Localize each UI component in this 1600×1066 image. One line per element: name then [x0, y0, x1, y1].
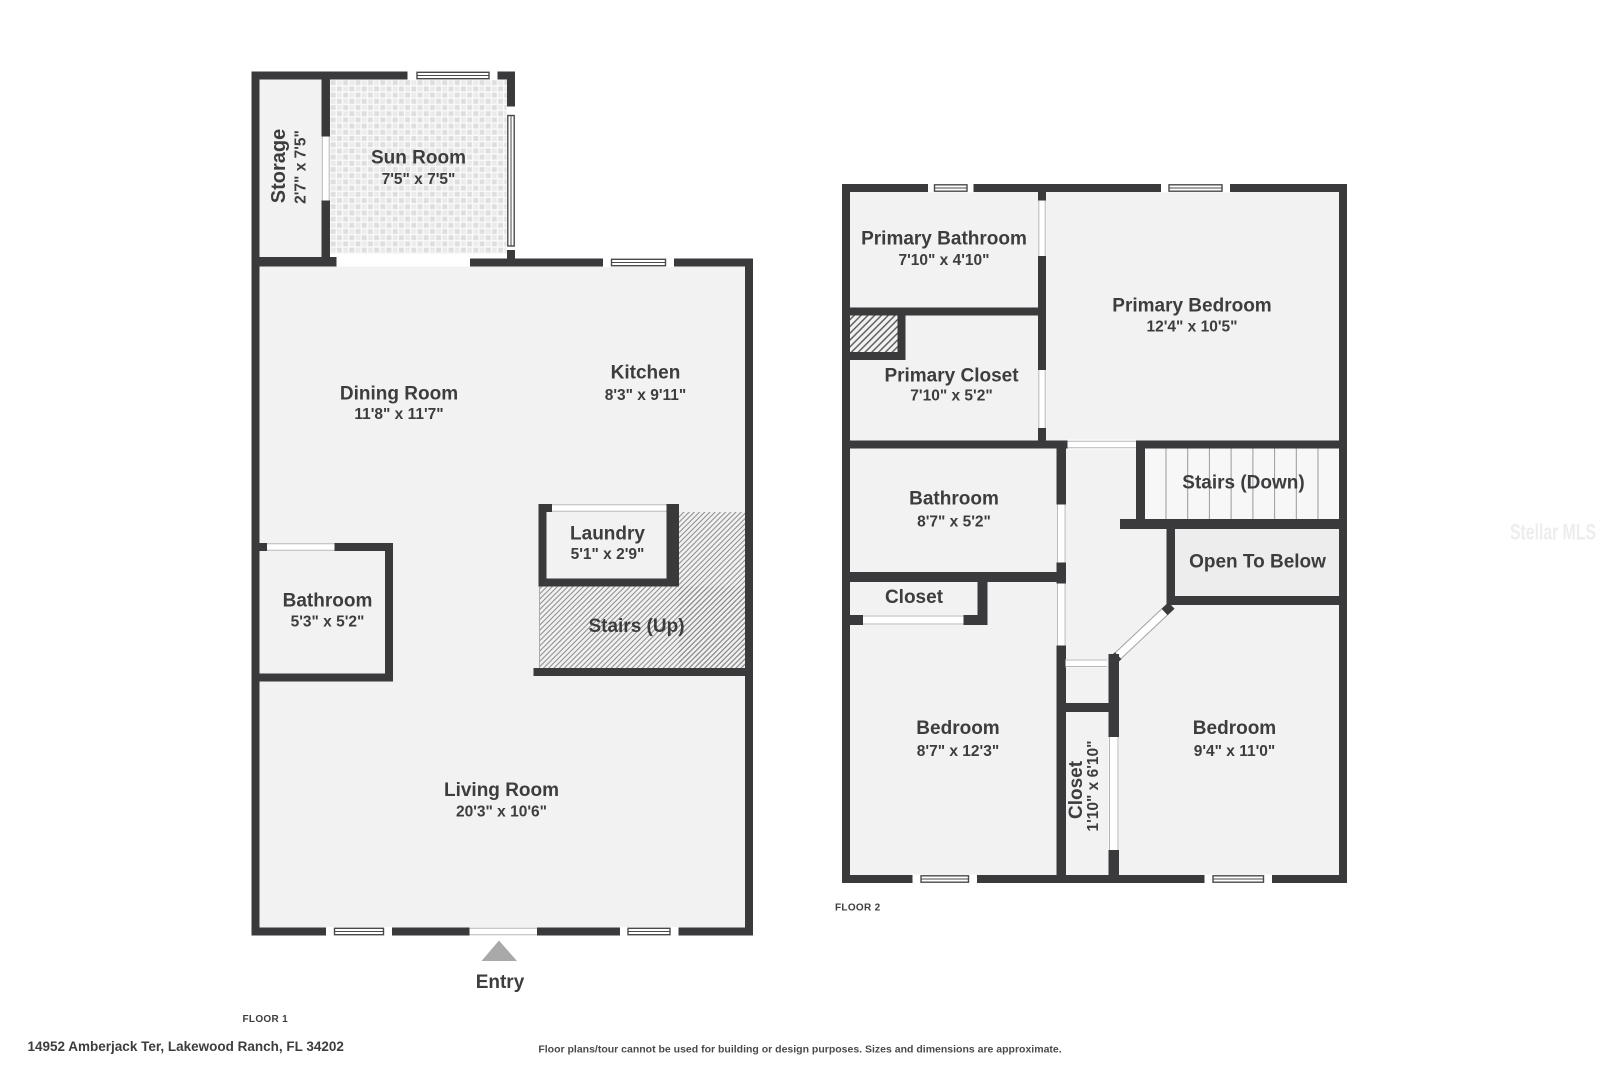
svg-text:Floor plans/tour cannot be use: Floor plans/tour cannot be used for buil… [538, 1044, 1061, 1056]
svg-text:Open To Below: Open To Below [1189, 552, 1326, 573]
svg-text:Primary Closet: Primary Closet [884, 366, 1019, 387]
svg-text:2'7" x 7'5": 2'7" x 7'5" [293, 130, 310, 204]
svg-text:5'3" x 5'2": 5'3" x 5'2" [291, 614, 365, 631]
svg-text:8'3" x 9'11": 8'3" x 9'11" [605, 387, 687, 404]
svg-text:Bathroom: Bathroom [283, 591, 373, 612]
svg-text:Stairs (Down): Stairs (Down) [1182, 473, 1304, 494]
svg-text:14952 Amberjack Ter, Lakewood: 14952 Amberjack Ter, Lakewood Ranch, FL … [28, 1039, 344, 1054]
svg-text:Closet: Closet [1066, 760, 1087, 819]
svg-text:7'10" x 5'2": 7'10" x 5'2" [910, 388, 992, 405]
svg-text:8'7" x 5'2": 8'7" x 5'2" [917, 514, 991, 531]
svg-text:8'7" x 12'3": 8'7" x 12'3" [917, 743, 999, 760]
svg-text:Stellar MLS: Stellar MLS [1510, 520, 1596, 545]
svg-text:Living Room: Living Room [444, 780, 559, 801]
svg-text:FLOOR 2: FLOOR 2 [835, 903, 881, 914]
svg-text:20'3" x 10'6": 20'3" x 10'6" [456, 804, 547, 821]
svg-text:FLOOR 1: FLOOR 1 [243, 1014, 289, 1025]
svg-text:Bedroom: Bedroom [1193, 718, 1276, 739]
svg-text:Primary Bathroom: Primary Bathroom [861, 229, 1027, 250]
svg-text:Closet: Closet [885, 587, 944, 608]
svg-text:Kitchen: Kitchen [611, 363, 681, 384]
svg-text:Entry: Entry [476, 972, 525, 993]
svg-text:Sun Room: Sun Room [371, 148, 466, 169]
svg-text:Dining Room: Dining Room [340, 384, 458, 405]
svg-text:Bathroom: Bathroom [909, 489, 999, 510]
svg-text:9'4" x 11'0": 9'4" x 11'0" [1194, 743, 1276, 760]
svg-text:5'1" x 2'9": 5'1" x 2'9" [571, 546, 645, 563]
svg-text:12'4" x 10'5": 12'4" x 10'5" [1146, 319, 1237, 336]
svg-text:Stairs (Up): Stairs (Up) [588, 616, 684, 637]
svg-text:11'8" x 11'7": 11'8" x 11'7" [354, 406, 443, 423]
svg-text:1'10" x 6'10": 1'10" x 6'10" [1085, 740, 1102, 831]
svg-text:7'5" x 7'5": 7'5" x 7'5" [382, 171, 456, 188]
svg-text:Laundry: Laundry [570, 524, 645, 545]
svg-text:7'10" x 4'10": 7'10" x 4'10" [898, 252, 989, 269]
svg-text:Primary Bedroom: Primary Bedroom [1112, 296, 1271, 317]
svg-text:Bedroom: Bedroom [916, 718, 999, 739]
svg-text:Storage: Storage [268, 129, 290, 203]
